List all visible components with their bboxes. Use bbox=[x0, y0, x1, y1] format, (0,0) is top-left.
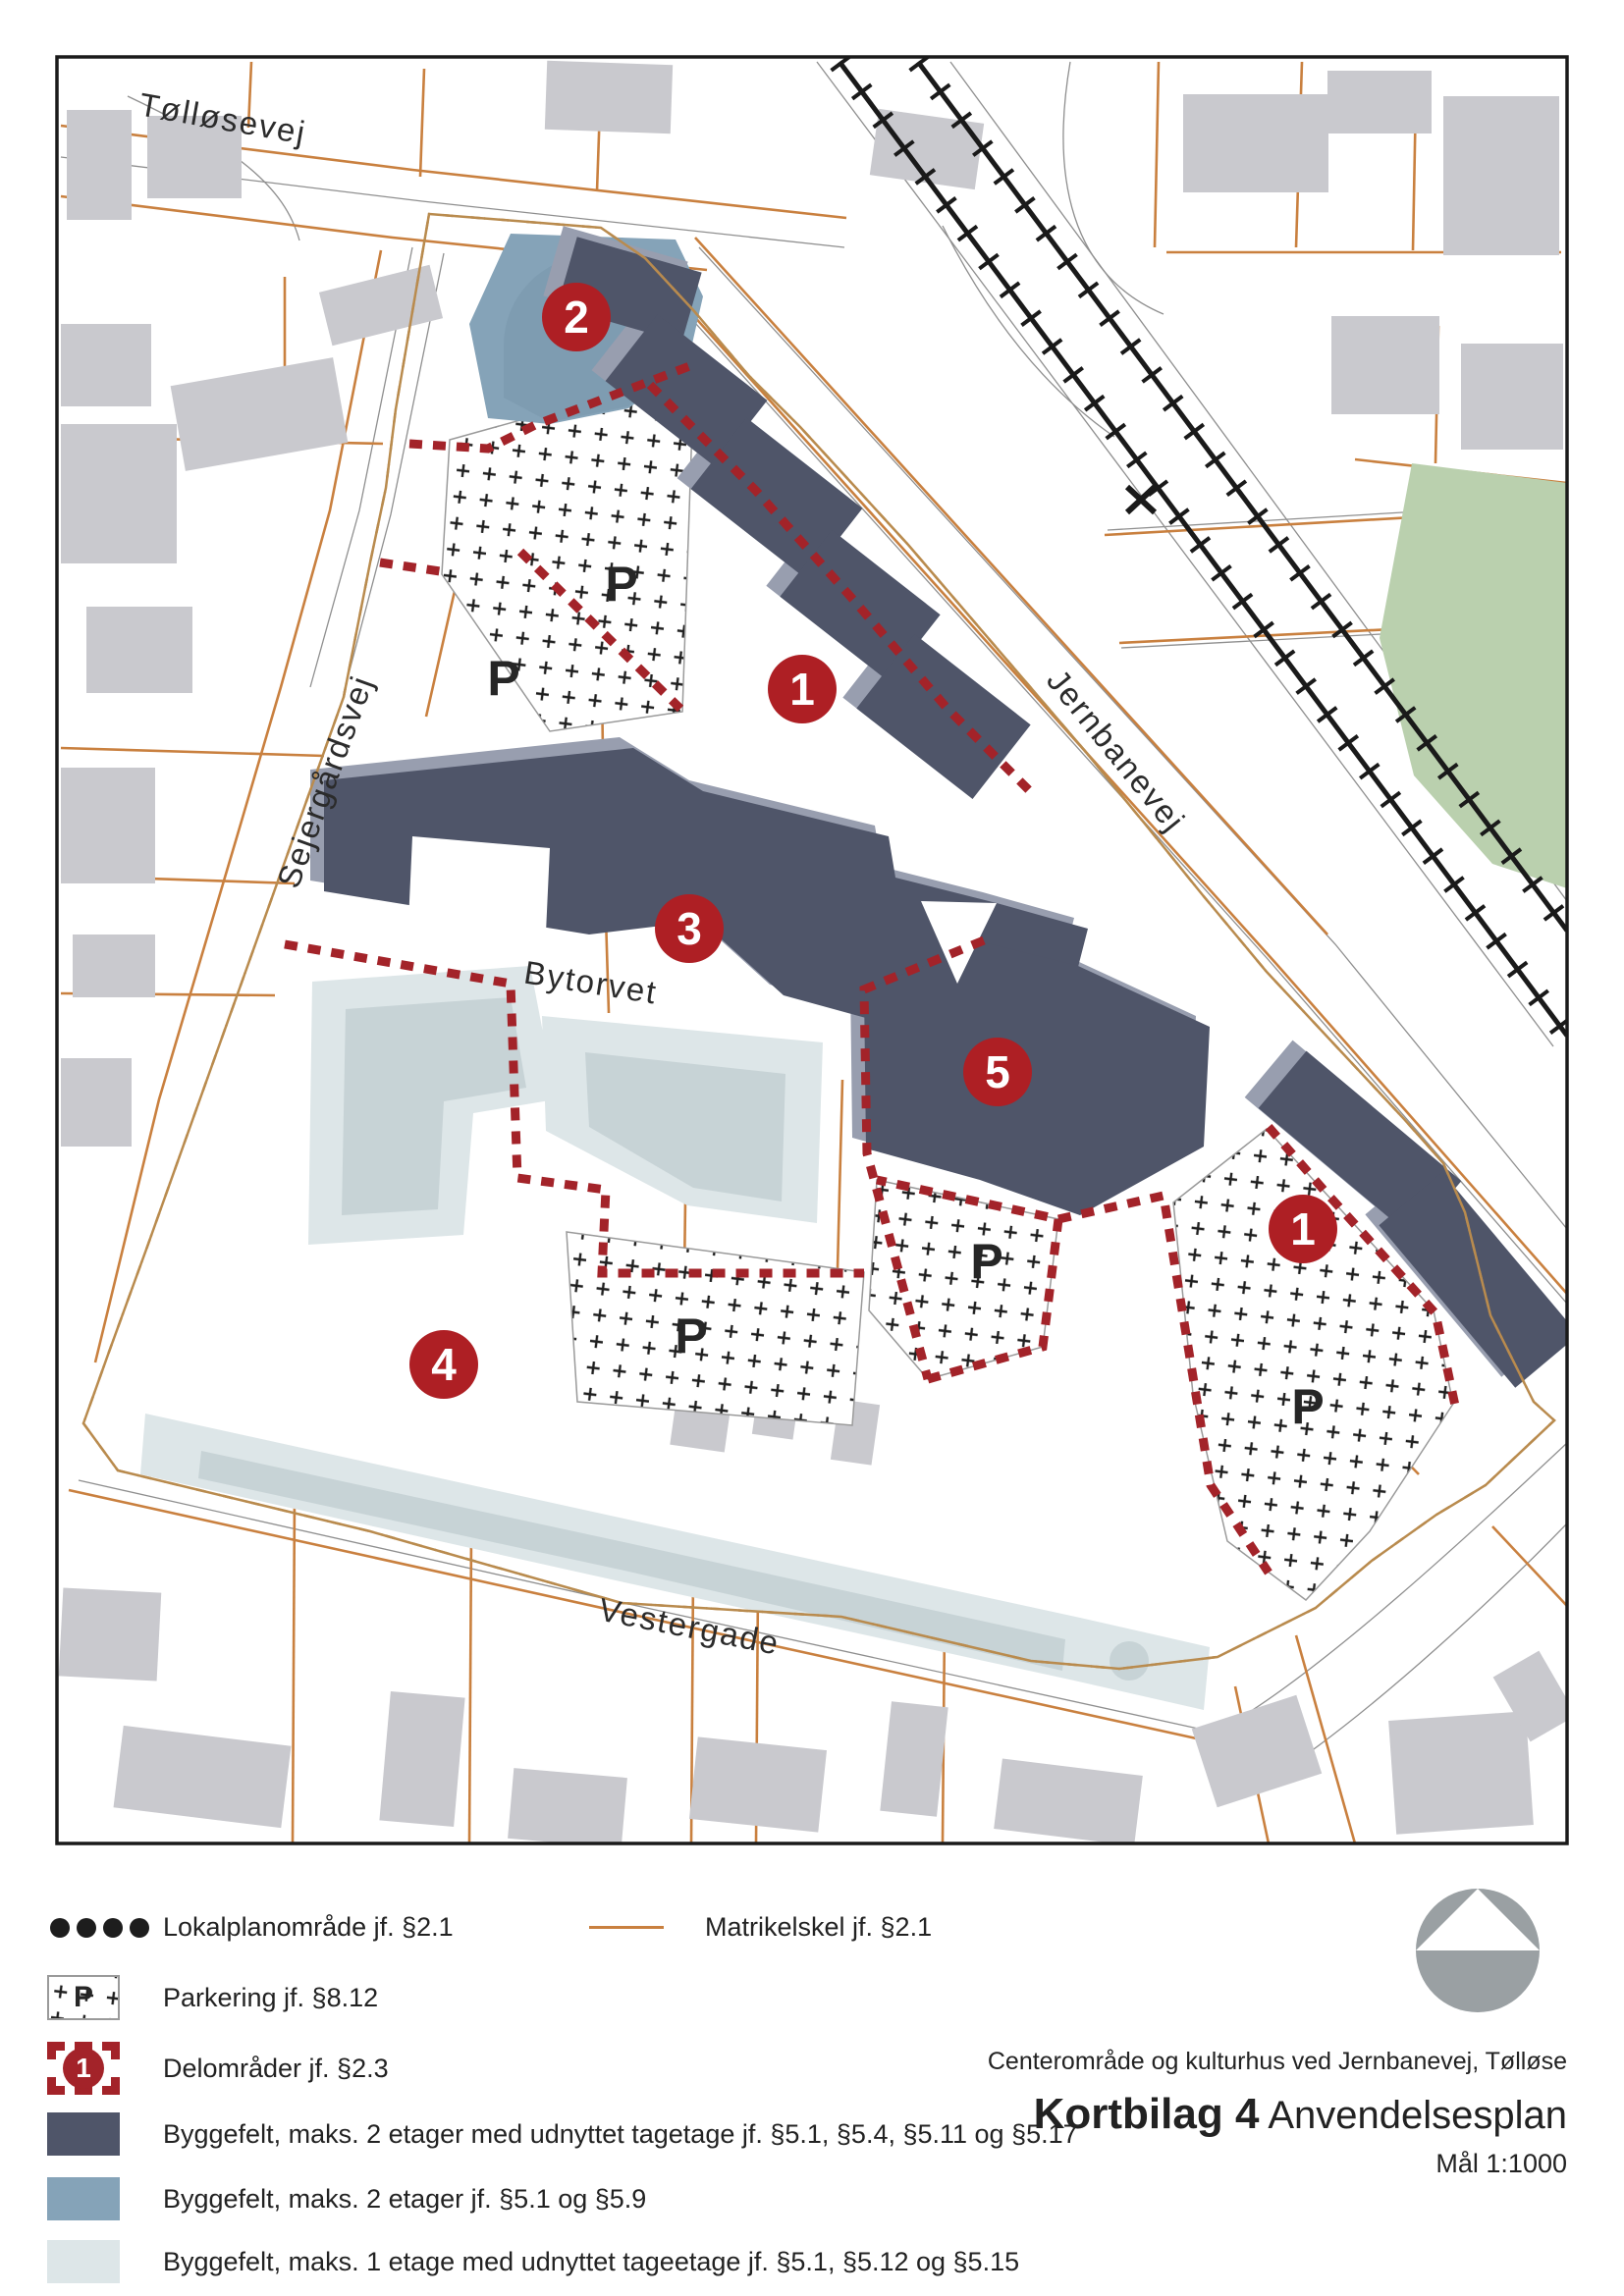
legend-row-byggefelt-2-tagetage: Byggefelt, maks. 2 etager med udnyttet t… bbox=[47, 2112, 1078, 2156]
svg-text:1: 1 bbox=[1290, 1203, 1316, 1255]
sheet-title: Kortbilag 4 Anvendelsesplan bbox=[988, 2090, 1567, 2139]
area-marker-1-north: 1 bbox=[768, 655, 837, 723]
lokalplan-boundary-swatch bbox=[47, 1915, 163, 1941]
parking-label: P bbox=[605, 557, 637, 612]
delomraade-swatch: 1 bbox=[47, 2042, 163, 2095]
area-marker-2: 2 bbox=[542, 283, 611, 351]
svg-text:1: 1 bbox=[789, 664, 815, 715]
legend-row-lokalplanomraade: Lokalplanområde jf. §2.1 bbox=[47, 1912, 454, 1943]
legend-row-byggefelt-2: Byggefelt, maks. 2 etager jf. §5.1 og §5… bbox=[47, 2177, 646, 2220]
swatch-number-circle: 1 bbox=[63, 2048, 104, 2089]
parking-label: P bbox=[1291, 1379, 1324, 1434]
area-marker-1-southeast: 1 bbox=[1269, 1195, 1337, 1263]
north-arrow bbox=[1414, 1887, 1542, 2014]
title-block: Centerområde og kulturhus ved Jernbaneve… bbox=[988, 2048, 1567, 2179]
legend-label: Byggefelt, maks. 2 etager jf. §5.1 og §5… bbox=[163, 2184, 646, 2215]
svg-text:4: 4 bbox=[431, 1339, 457, 1390]
area-marker-4: 4 bbox=[409, 1330, 478, 1399]
area-marker-5: 5 bbox=[963, 1038, 1032, 1106]
legend-label: Delområder jf. §2.3 bbox=[163, 2054, 389, 2084]
legend-label: Byggefelt, maks. 1 etage med udnyttet ta… bbox=[163, 2247, 1019, 2277]
legend-label: Lokalplanområde jf. §2.1 bbox=[163, 1912, 454, 1943]
map-scale: Mål 1:1000 bbox=[988, 2149, 1567, 2179]
legend-row-matrikelskel: Matrikelskel jf. §2.1 bbox=[589, 1912, 932, 1943]
legend-row-delomraader: 1 Delområder jf. §2.3 bbox=[47, 2042, 389, 2095]
anvendelsesplan-map: Tølløsevej Sejergårdsvej Jernbanevej Byt… bbox=[0, 0, 1624, 1845]
legend-label: Parkering jf. §8.12 bbox=[163, 1983, 378, 2013]
byggefelt-pale-swatch bbox=[47, 2240, 163, 2283]
legend-row-byggefelt-1: Byggefelt, maks. 1 etage med udnyttet ta… bbox=[47, 2240, 1019, 2283]
byggefelt-blue-swatch bbox=[47, 2177, 163, 2220]
boundary-dots-icon bbox=[47, 1915, 149, 1941]
project-title: Centerområde og kulturhus ved Jernbaneve… bbox=[988, 2048, 1567, 2076]
svg-text:5: 5 bbox=[985, 1046, 1010, 1097]
parking-label: P bbox=[675, 1308, 707, 1363]
legend-row-parkering: P Parkering jf. §8.12 bbox=[47, 1975, 378, 2020]
svg-text:2: 2 bbox=[564, 292, 589, 343]
map-canvas: Tølløsevej Sejergårdsvej Jernbanevej Byt… bbox=[0, 0, 1624, 1845]
parking-label: P bbox=[487, 651, 519, 706]
svg-text:3: 3 bbox=[677, 903, 702, 954]
courtyard-cutout bbox=[408, 836, 550, 933]
sheet-type: Anvendelsesplan bbox=[1268, 2094, 1567, 2137]
swatch-p-letter: P bbox=[74, 1981, 93, 2014]
parking-pattern-swatch: P bbox=[47, 1975, 163, 2020]
sheet-number: Kortbilag 4 bbox=[1034, 2090, 1260, 2138]
north-arrow-icon bbox=[1414, 1887, 1542, 2014]
parking-label: P bbox=[970, 1234, 1002, 1289]
legend-label: Byggefelt, maks. 2 etager med udnyttet t… bbox=[163, 2119, 1078, 2150]
byggefelt-dark-swatch bbox=[47, 2112, 163, 2156]
area-marker-3: 3 bbox=[655, 894, 724, 963]
legend-label: Matrikelskel jf. §2.1 bbox=[705, 1912, 932, 1943]
matrikel-line-swatch bbox=[589, 1926, 705, 1929]
